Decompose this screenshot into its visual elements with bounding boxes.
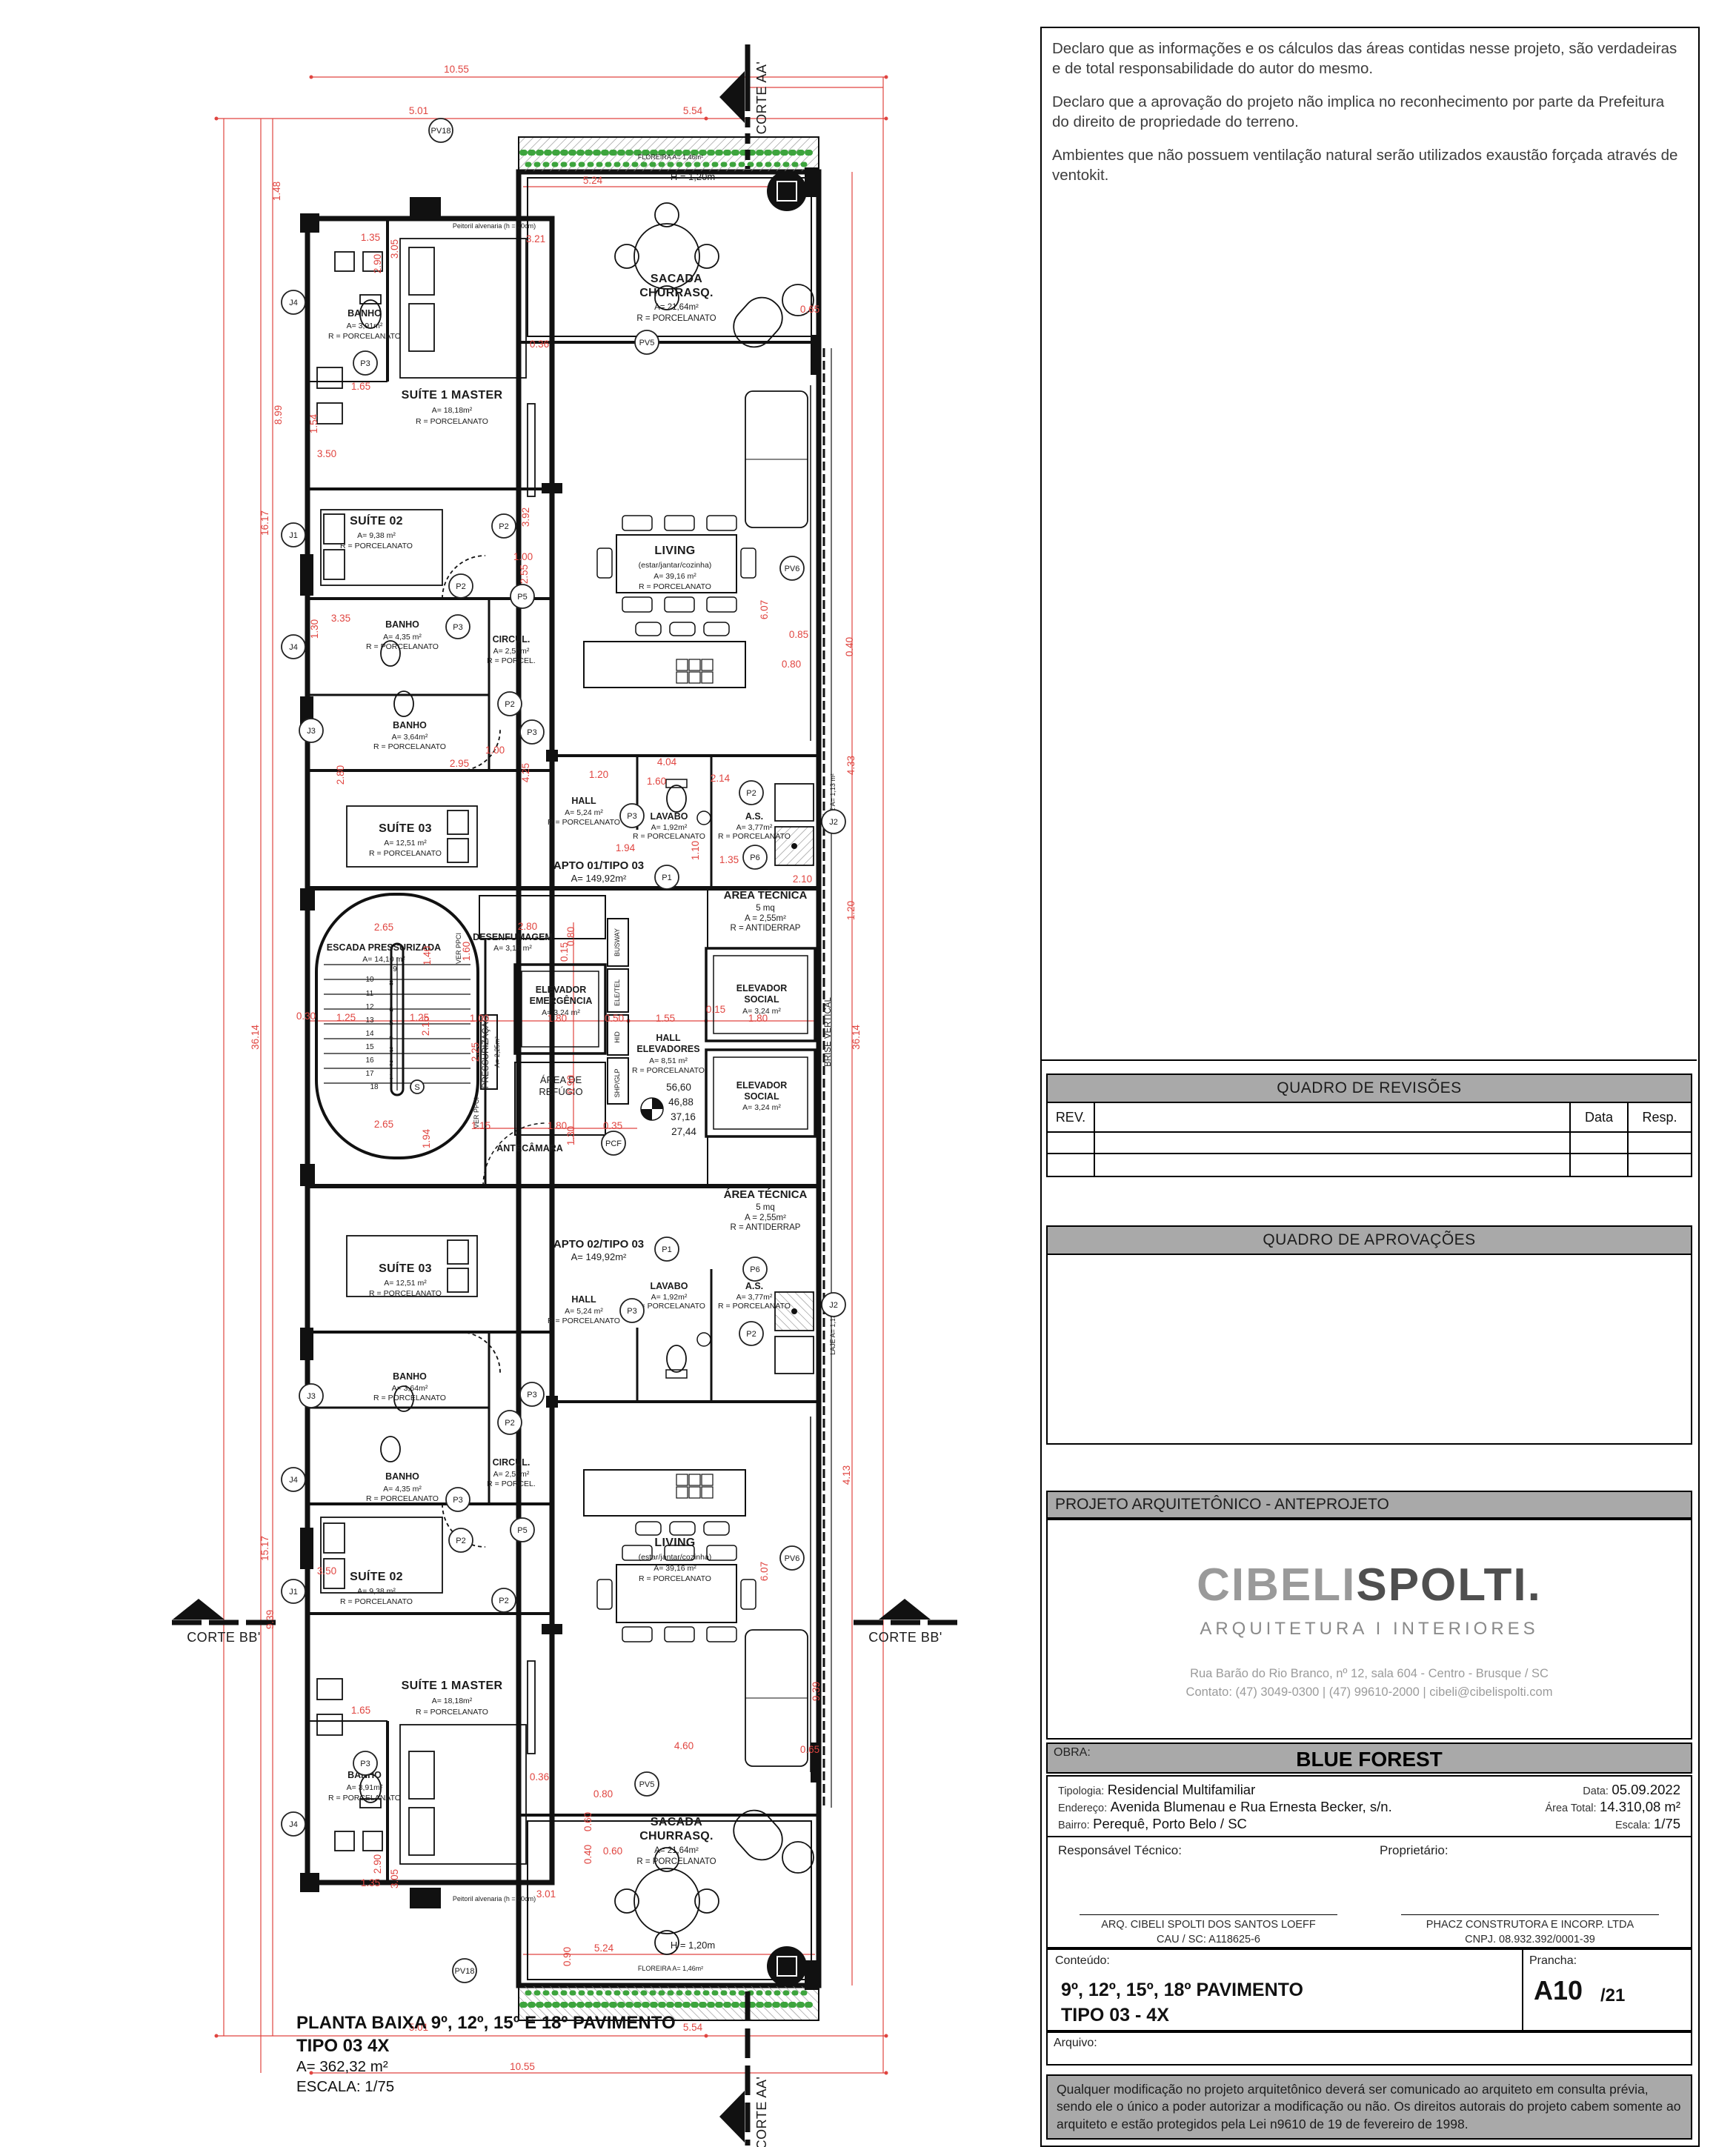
declarations-divider [1040, 1059, 1697, 1061]
plan-label: A= 21,64m² [654, 1846, 699, 1855]
plan-label: 12 [365, 1003, 374, 1011]
plan-label: SUÍTE 02 [350, 1569, 403, 1583]
plan-dimension: 1.00 [485, 745, 505, 756]
revisions-cell [1095, 1154, 1571, 1176]
plan-dimension: 4.25 [520, 763, 531, 782]
plan-dimension: 3.21 [526, 233, 545, 244]
plan-caption-area: A= 362,32 m² [296, 2057, 682, 2077]
plan-label: 5 mq [756, 904, 775, 913]
revisions-cell [1048, 1133, 1095, 1154]
plan-label: SUÍTE 03 [379, 1261, 432, 1275]
plan-label: A= 9,38 m² [357, 1587, 396, 1596]
revisions-col-resp: Resp. [1629, 1103, 1691, 1133]
plan-label: SUÍTE 1 MASTER [402, 387, 503, 402]
plan-dimension: 1.00 [513, 551, 533, 562]
sheet-number-cell: Prancha: A10 /21 [1522, 1950, 1691, 2030]
plan-dimension: 1.30 [565, 1126, 576, 1145]
plan-dimension: 2.95 [450, 758, 469, 769]
plan-dimension: 1.15 [471, 1120, 490, 1131]
plan-label: SHP/GLP [613, 1068, 621, 1097]
plan-dimension: 0.80 [782, 659, 801, 670]
data-value: 05.09.2022 [1612, 1782, 1680, 1797]
plan-label: BUSWAY [613, 928, 621, 956]
obra-value: BLUE FOREST [1048, 1748, 1691, 1771]
plan-label: R = PORCELANATO [328, 332, 401, 341]
plan-dimension: 2.65 [374, 1119, 393, 1130]
plan-label: ÁREA TÉCNICA [724, 1188, 808, 1201]
approvals-box: QUADRO DE APROVAÇÕES [1046, 1225, 1692, 1445]
architect-logo-box: CIBELISPOLTI. ARQUITETURA I INTERIORES R… [1046, 1519, 1692, 1740]
plan-marker-label: PV6 [785, 1554, 800, 1563]
plan-dimension: 0.65 [800, 1744, 819, 1755]
plan-label: LAVABO [651, 811, 688, 822]
plan-label: CHURRASQ. [639, 287, 714, 299]
plan-marker-label: J2 [829, 1301, 838, 1310]
plan-marker-label: PCF [605, 1139, 622, 1148]
plan-dimension: 5.24 [594, 1943, 614, 1954]
content-left: Conteúdo: 9º, 12º, 15º, 18º PAVIMENTO TI… [1048, 1950, 1523, 2030]
declaration-1: Declaro que as informações e os cálculos… [1052, 39, 1679, 79]
plan-label: 27,44 [671, 1126, 696, 1137]
plan-label: A= 18,18m² [432, 1697, 473, 1705]
plan-label: R = PORCEL. [487, 656, 536, 665]
plan-dimension: 0.80 [593, 1788, 613, 1800]
plan-marker-label: P3 [453, 1496, 462, 1505]
plan-label: 14 [365, 1030, 374, 1038]
plan-label: A= 2,25m² [493, 1036, 501, 1068]
plan-label: 7 [389, 993, 393, 1001]
plan-label: R = PORCELANATO [718, 832, 791, 841]
revisions-col-rev: REV. [1048, 1103, 1095, 1133]
plan-label: BANHO [385, 1471, 419, 1482]
plan-marker-label: P3 [527, 728, 536, 737]
plan-dimension: 0.90 [562, 1947, 573, 1966]
plan-marker-label: J2 [829, 818, 838, 827]
plan-label: (estar/jantar/cozinha) [639, 561, 712, 570]
plan-label: A= 12,51 m² [384, 1279, 427, 1288]
plan-label: 16 [365, 1056, 374, 1065]
plan-marker-label: P3 [627, 812, 636, 821]
plan-dimension: 1.40 [422, 946, 433, 965]
revisions-col-desc [1095, 1103, 1571, 1133]
logo-name: CIBELISPOLTI. [1048, 1559, 1691, 1611]
plan-label: A= 2,55m² [493, 1470, 530, 1479]
plan-label: A= 3,91m² [347, 1783, 383, 1792]
plan-label: R = PORCELANATO [636, 1857, 716, 1866]
plan-label: A= 3,15 m² [493, 944, 532, 953]
bairro-value: Perequê, Porto Belo / SC [1093, 1816, 1247, 1831]
plan-label: R = PORCELANATO [340, 542, 413, 550]
plan-caption-scale: ESCALA: 1/75 [296, 2077, 682, 2097]
plan-dimension: 1.00 [470, 1013, 489, 1024]
proprietario-signature-line [1401, 1914, 1658, 1915]
plan-label: 9 [393, 965, 397, 973]
area-total-value: 14.310,08 m² [1600, 1799, 1680, 1814]
plan-marker-label: P2 [505, 700, 514, 709]
plan-dimension: 6.07 [759, 600, 770, 619]
plan-label: 37,16 [671, 1111, 696, 1122]
plan-marker-label: P3 [527, 1391, 536, 1399]
plan-label: SUÍTE 02 [350, 513, 403, 527]
plan-marker-label: P2 [746, 789, 756, 798]
plan-label: 17 [365, 1070, 374, 1078]
responsavel-name: ARQ. CIBELI SPOLTI DOS SANTOS LOEFF [1048, 1919, 1369, 1931]
plan-dimension: 5.54 [683, 2022, 703, 2033]
revisions-cell [1095, 1133, 1571, 1154]
plan-label: SUÍTE 1 MASTER [402, 1678, 503, 1692]
plan-label: CORTE AA' [754, 2077, 769, 2147]
plan-label: PRESSURIZAÇÃO [481, 1016, 490, 1088]
revisions-col-data: Data [1571, 1103, 1629, 1133]
logo-subtitle: ARQUITETURA I INTERIORES [1048, 1619, 1691, 1640]
plan-marker-label: J4 [289, 643, 298, 652]
plan-label: R = PORCELANATO [328, 1794, 401, 1803]
plan-dimension: 16.17 [259, 510, 270, 536]
plan-dimension: 1.80 [748, 1013, 768, 1024]
plan-label: 1 [389, 1073, 393, 1081]
plan-label: A= 3,64m² [392, 733, 428, 742]
plan-label: 3 [389, 1046, 393, 1054]
plan-label: APTO 01/TIPO 03 [553, 859, 644, 872]
plan-label: BRISE VERTICAL [824, 997, 833, 1067]
plan-label: R = PORCELANATO [366, 642, 439, 651]
plan-dimension: 15.17 [259, 1536, 270, 1561]
plan-dimension: 3.50 [317, 1565, 336, 1577]
revisions-grid: REV. Data Resp. [1048, 1103, 1691, 1176]
plan-label: A= 5,24 m² [565, 1307, 603, 1316]
plan-label: (estar/jantar/cozinha) [639, 1553, 712, 1562]
plan-label: A= 3,77m² [736, 1293, 773, 1302]
plan-label: R = PORCELANATO [548, 1317, 620, 1325]
plan-label: FLOREIRA A= 1,46m² [638, 1965, 703, 1972]
plan-label: BANHO [385, 619, 419, 630]
plan-marker-label: P2 [456, 1537, 465, 1545]
plan-label: A= 1,92m² [651, 823, 688, 832]
plan-marker-label: P6 [750, 853, 759, 862]
endereco-label: Endereço: [1058, 1803, 1107, 1814]
plan-label: CIRCUL. [493, 634, 531, 645]
plan-dimension: 2.90 [372, 254, 383, 273]
plan-label: FLOREIRA A= 1,46m² [638, 153, 703, 161]
plan-marker-label: J3 [307, 727, 316, 736]
plan-dimension: 1.20 [845, 901, 857, 920]
plan-dimension: 1.35 [719, 854, 739, 865]
bairro-label: Bairro: [1058, 1820, 1090, 1831]
plan-dimension: 1.35 [361, 1877, 380, 1888]
plan-dimension: 9.39 [265, 1610, 276, 1629]
plan-dimension: 0.60 [582, 1812, 593, 1831]
plan-dimension: 2.14 [711, 773, 731, 784]
drawing-sheet: SUÍTE 1 MASTERA= 18,18m²R = PORCELANATOB… [0, 0, 1736, 2147]
data-label: Data: [1583, 1785, 1609, 1797]
tipologia-label: Tipologia: [1058, 1785, 1104, 1797]
plan-dimension: 2.80 [518, 921, 537, 932]
plan-label: A= 4,35 m² [383, 1485, 422, 1494]
plan-dimension: 0.85 [789, 629, 808, 640]
plan-label: ELEVADOR [736, 983, 788, 993]
logo-address-line: Rua Barão do Rio Branco, nº 12, sala 604… [1048, 1665, 1691, 1683]
plan-label: R = PORCEL. [487, 1479, 536, 1488]
project-stage-band: PROJETO ARQUITETÔNICO - ANTEPROJETO [1046, 1491, 1692, 1519]
arquivo-label: Arquivo: [1054, 2037, 1097, 2050]
revisions-cell [1048, 1154, 1095, 1176]
plan-label: A= 1,92m² [651, 1293, 688, 1302]
prancha-total: /21 [1600, 1985, 1625, 2006]
project-info-right: Data: 05.09.2022 Área Total: 14.310,08 m… [1545, 1782, 1680, 1833]
plan-label: HALL [571, 1294, 596, 1305]
plan-caption-line2: TIPO 03 4X [296, 2035, 682, 2058]
plan-label: LIVING [654, 1537, 695, 1549]
plan-dimension: 5.54 [683, 105, 703, 116]
signatures-box: Responsável Técnico: ARQ. CIBELI SPOLTI … [1046, 1836, 1692, 1948]
project-info-box: Tipologia: Residencial Multifamiliar End… [1046, 1775, 1692, 1837]
plan-label: 8 [389, 979, 393, 988]
plan-marker-label: P3 [453, 623, 462, 632]
plan-label: HALL [656, 1033, 681, 1043]
plan-label: A= 3,24 m² [742, 1103, 781, 1112]
plan-dimension: 1.20 [589, 769, 608, 780]
revisions-table: QUADRO DE REVISÕES REV. Data Resp. [1046, 1073, 1692, 1177]
plan-marker-label: P3 [627, 1307, 636, 1316]
plan-dimension: 9.39 [811, 1682, 822, 1701]
plan-label: R = PORCELANATO [373, 1394, 446, 1402]
conteudo-label: Conteúdo: [1055, 1954, 1110, 1968]
plan-dimension: 1.55 [656, 1013, 675, 1024]
plan-dimension: 3.05 [389, 1869, 400, 1888]
plan-dimension: 2.65 [374, 922, 393, 933]
logo-name-dark: SPOLTI. [1356, 1560, 1542, 1611]
unit-right-wing [519, 137, 819, 888]
plan-label: 6 [389, 1006, 393, 1014]
tipologia-value: Residencial Multifamiliar [1108, 1782, 1255, 1797]
plan-label: ELEVADORES [636, 1044, 699, 1054]
project-info-left: Tipologia: Residencial Multifamiliar End… [1058, 1782, 1392, 1833]
plan-marker-label: J1 [289, 531, 298, 540]
plan-marker-label: P1 [662, 873, 671, 882]
plan-label: CORTE BB' [187, 1630, 261, 1645]
plan-label: CORTE AA' [754, 61, 769, 135]
plan-marker-label: P1 [662, 1245, 671, 1254]
plan-caption-line1: PLANTA BAIXA 9º, 12º, 15º E 18º PAVIMENT… [296, 2012, 682, 2035]
revisions-cell [1571, 1133, 1629, 1154]
plan-dimension: 1.65 [351, 1705, 370, 1716]
plan-dimension: 1.54 [308, 413, 319, 433]
plan-label: 10 [365, 976, 374, 984]
proprietario-label: Proprietário: [1380, 1843, 1449, 1858]
plan-label: A= 39,16 m² [654, 572, 696, 581]
conteudo-line1: 9º, 12º, 15º, 18º PAVIMENTO [1061, 1980, 1303, 2001]
plan-label: 56,60 [666, 1082, 691, 1093]
plan-dimension: 1.25 [410, 1012, 429, 1023]
plan-label: R = PORCELANATO [639, 1574, 711, 1583]
plan-label: A.S. [745, 1281, 763, 1291]
plan-dimension: 1.80 [548, 1120, 567, 1131]
logo-contact-line: Contato: (47) 3049-0300 | (47) 99610-200… [1048, 1683, 1691, 1702]
plan-label: R = PORCELANATO [639, 582, 711, 591]
revisions-cell [1629, 1154, 1691, 1176]
plan-label: 5 mq [756, 1203, 775, 1212]
endereco-value: Avenida Blumenau e Rua Ernesta Becker, s… [1111, 1799, 1392, 1814]
plan-dimension: 3.50 [317, 448, 336, 459]
plan-label: 13 [365, 1016, 374, 1025]
escala-label: Escala: [1615, 1820, 1651, 1831]
plan-dimension: 36.14 [851, 1025, 862, 1050]
plan-label: Peitoril alvenaria (h = 20cm) [453, 222, 536, 230]
plan-caption: PLANTA BAIXA 9º, 12º, 15º E 18º PAVIMENT… [296, 2012, 682, 2097]
plan-marker-label: J4 [289, 299, 298, 307]
plan-label: R = PORCELANATO [416, 1708, 488, 1717]
plan-label: 4 [389, 1033, 393, 1041]
obra-band: OBRA: BLUE FOREST [1046, 1742, 1692, 1774]
plan-marker-label: J1 [289, 1588, 298, 1597]
plan-dimension: 3.35 [331, 613, 350, 624]
conteudo-line2: TIPO 03 - 4X [1061, 2005, 1169, 2026]
plan-marker-label: PV6 [785, 565, 800, 573]
plan-dimension: 5.24 [583, 175, 603, 186]
plan-dimension: 0.36 [530, 339, 549, 350]
plan-label: A= 149,92m² [571, 1251, 627, 1262]
plan-dimension: 6.07 [759, 1562, 770, 1581]
plan-dimension: 8.99 [273, 405, 284, 425]
plan-label: A= 5,24 m² [565, 808, 603, 817]
plan-dimension: 1.48 [271, 182, 282, 201]
plan-label: 2 [389, 1059, 393, 1068]
prancha-label: Prancha: [1529, 1954, 1577, 1968]
plan-dimension: 1.94 [616, 842, 636, 853]
plan-marker-label: P3 [360, 359, 370, 368]
plan-label: R = PORCELANATO [369, 849, 442, 858]
plan-label: ANTECÂMARA [496, 1142, 563, 1154]
plan-dimension: 1.10 [690, 841, 701, 860]
plan-label: ELEVADOR [736, 1080, 788, 1091]
plan-label: R = PORCELANATO [718, 1302, 791, 1311]
plan-label: H = 1,20m [671, 171, 715, 182]
plan-label: CIRCUL. [493, 1457, 531, 1468]
plan-label: SACADA [651, 1816, 702, 1828]
plan-label: BANHO [393, 720, 427, 730]
plan-dimension: 1.65 [351, 381, 370, 392]
plan-label: 46,88 [668, 1096, 694, 1108]
responsavel-signature-line [1080, 1914, 1337, 1915]
plan-dimension: 3.05 [389, 239, 400, 259]
plan-label: A= 21,64m² [654, 303, 699, 312]
plan-dimension: 0.90 [565, 1075, 576, 1094]
plan-dimension: 4.60 [674, 1740, 694, 1751]
declaration-2: Declaro que a aprovação do projeto não i… [1052, 92, 1679, 132]
plan-label: SOCIAL [744, 1091, 779, 1102]
proprietario-name: PHACZ CONSTRUTORA E INCORP. LTDA [1369, 1919, 1691, 1931]
plan-dimension: 2.55 [519, 565, 530, 584]
declaration-3: Ambientes que não possuem ventilação nat… [1052, 145, 1679, 185]
plan-marker-label: J4 [289, 1476, 298, 1485]
plan-label: SOCIAL [744, 994, 779, 1005]
plan-label: A= 18,18m² [432, 406, 473, 415]
plan-label: R = PORCELANATO [366, 1494, 439, 1503]
responsavel-registry: CAU / SC: A118625-6 [1048, 1934, 1369, 1945]
responsavel-label: Responsável Técnico: [1058, 1843, 1182, 1858]
plan-label: R = PORCELANATO [369, 1289, 442, 1298]
plan-label: ELE/TEL [613, 979, 621, 1006]
plan-label: H = 1,20m [671, 1940, 715, 1951]
plan-label: LAVABO [651, 1281, 688, 1291]
area-total-label: Área Total: [1545, 1803, 1596, 1814]
plan-label: ELEVADOR [536, 985, 587, 995]
plan-dimension: 0.36 [530, 1771, 549, 1782]
plan-dimension: 2.90 [372, 1854, 383, 1874]
plan-label: BANHO [347, 308, 382, 319]
plan-dimension: 0.60 [603, 1845, 622, 1857]
plan-marker-label: PV18 [455, 1967, 475, 1976]
plan-dimension: 0.65 [800, 304, 819, 315]
floor-plan: SUÍTE 1 MASTERA= 18,18m²R = PORCELANATOB… [0, 0, 1040, 2147]
plan-label: A= 12,51 m² [384, 839, 427, 848]
plan-dimension: 0.15 [706, 1004, 725, 1015]
plan-label: R = PORCELANATO [548, 818, 620, 827]
plan-marker-label: P6 [750, 1265, 759, 1274]
plan-label: A= 14,10 m² [362, 955, 405, 964]
plan-dimension: 1.94 [421, 1128, 432, 1148]
plan-dimension: 2.80 [335, 765, 346, 785]
plan-label: A= 39,16 m² [654, 1564, 696, 1573]
plan-label: A= 3,91m² [347, 322, 383, 330]
plan-label: CHURRASQ. [639, 1830, 714, 1843]
plan-marker-label: J4 [289, 1820, 298, 1829]
plan-dimension: 5.01 [409, 105, 428, 116]
file-box: Arquivo: [1046, 2031, 1692, 2066]
plan-label: HALL [571, 796, 596, 806]
logo-address: Rua Barão do Rio Branco, nº 12, sala 604… [1048, 1665, 1691, 1702]
logo-name-light: CIBELI [1197, 1560, 1356, 1611]
plan-marker-label: J3 [307, 1392, 316, 1401]
plan-label: CORTE BB' [868, 1630, 942, 1645]
revisions-cell [1629, 1133, 1691, 1154]
plan-label: A= 3,77m² [736, 823, 773, 832]
plan-marker-label: P2 [456, 582, 465, 591]
plan-label: A= 3,64m² [392, 1384, 428, 1393]
plan-label: A = 2,55m² [745, 1214, 786, 1222]
plan-label: 15 [365, 1043, 374, 1051]
plan-dimension: 3.01 [536, 1888, 556, 1900]
revisions-title: QUADRO DE REVISÕES [1048, 1075, 1691, 1103]
responsavel-block: Responsável Técnico: ARQ. CIBELI SPOLTI … [1048, 1837, 1369, 1947]
plan-dimension: 1.30 [309, 619, 320, 639]
plan-marker-label: P2 [499, 1597, 508, 1605]
plan-marker-label: PV5 [639, 339, 655, 347]
plan-marker-label: P2 [505, 1419, 514, 1428]
plan-dimension: 0.15 [559, 942, 570, 962]
plan-dimension: 4.13 [841, 1465, 852, 1485]
plan-dimension: 1.60 [647, 776, 666, 787]
plan-label: BANHO [393, 1371, 427, 1382]
plan-dimension: 0.50 [605, 1013, 624, 1024]
plan-dimension: 1.35 [361, 232, 380, 243]
plan-dimension: 1.80 [548, 1013, 567, 1024]
proprietario-block: Proprietário: PHACZ CONSTRUTORA E INCORP… [1369, 1837, 1691, 1947]
plan-marker-label: P2 [499, 522, 508, 531]
plan-dimension: 4.04 [657, 756, 677, 768]
plan-marker-label: S [414, 1083, 419, 1092]
plan-label: R = PORCELANATO [636, 314, 716, 323]
content-box: Conteúdo: 9º, 12º, 15º, 18º PAVIMENTO TI… [1046, 1948, 1692, 2031]
plan-label: R = PORCELANATO [416, 417, 488, 426]
plan-dimension: 36.14 [250, 1025, 261, 1050]
plan-dimension: 4.33 [845, 756, 857, 775]
plan-label: R = ANTIDERRAP [731, 924, 801, 933]
plan-marker-label: P5 [517, 593, 527, 602]
plan-label: EMERGÊNCIA [530, 995, 593, 1006]
plan-dimension: 3.92 [520, 507, 531, 527]
plan-label: A = 2,55m² [745, 914, 786, 923]
